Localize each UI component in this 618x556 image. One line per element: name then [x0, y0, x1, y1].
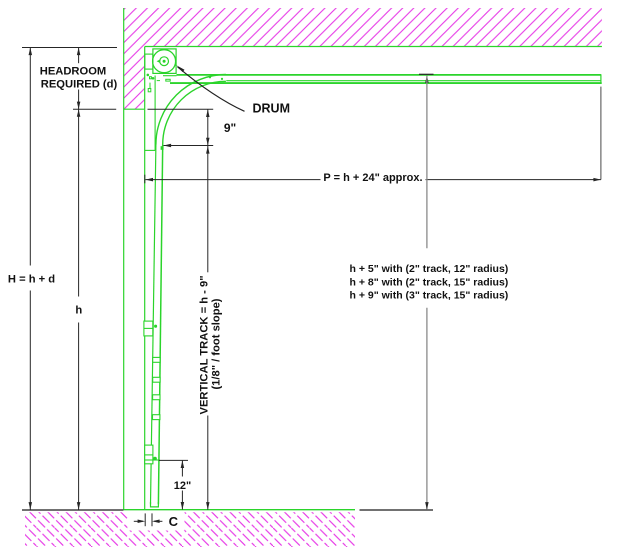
svg-text:VERTICAL TRACK = h - 9": VERTICAL TRACK = h - 9" — [198, 275, 210, 414]
svg-text:9": 9" — [224, 121, 236, 135]
svg-text:HEADROOM: HEADROOM — [40, 65, 107, 77]
svg-text:h + 8" with (2" track, 15" rad: h + 8" with (2" track, 15" radius) — [350, 276, 509, 288]
svg-text:H = h + d: H = h + d — [8, 273, 55, 285]
svg-text:DRUM: DRUM — [253, 101, 291, 115]
svg-text:P = h + 24" approx.: P = h + 24" approx. — [323, 172, 422, 184]
svg-text:REQUIRED (d): REQUIRED (d) — [41, 78, 118, 90]
svg-text:h + 5" with (2" track, 12" rad: h + 5" with (2" track, 12" radius) — [350, 263, 509, 275]
svg-text:(1/8" / foot slope): (1/8" / foot slope) — [211, 298, 223, 389]
svg-text:h + 9" with (3" track, 15" rad: h + 9" with (3" track, 15" radius) — [350, 290, 509, 302]
svg-text:C: C — [169, 514, 179, 529]
svg-text:h: h — [75, 305, 82, 317]
svg-text:12": 12" — [174, 480, 191, 492]
